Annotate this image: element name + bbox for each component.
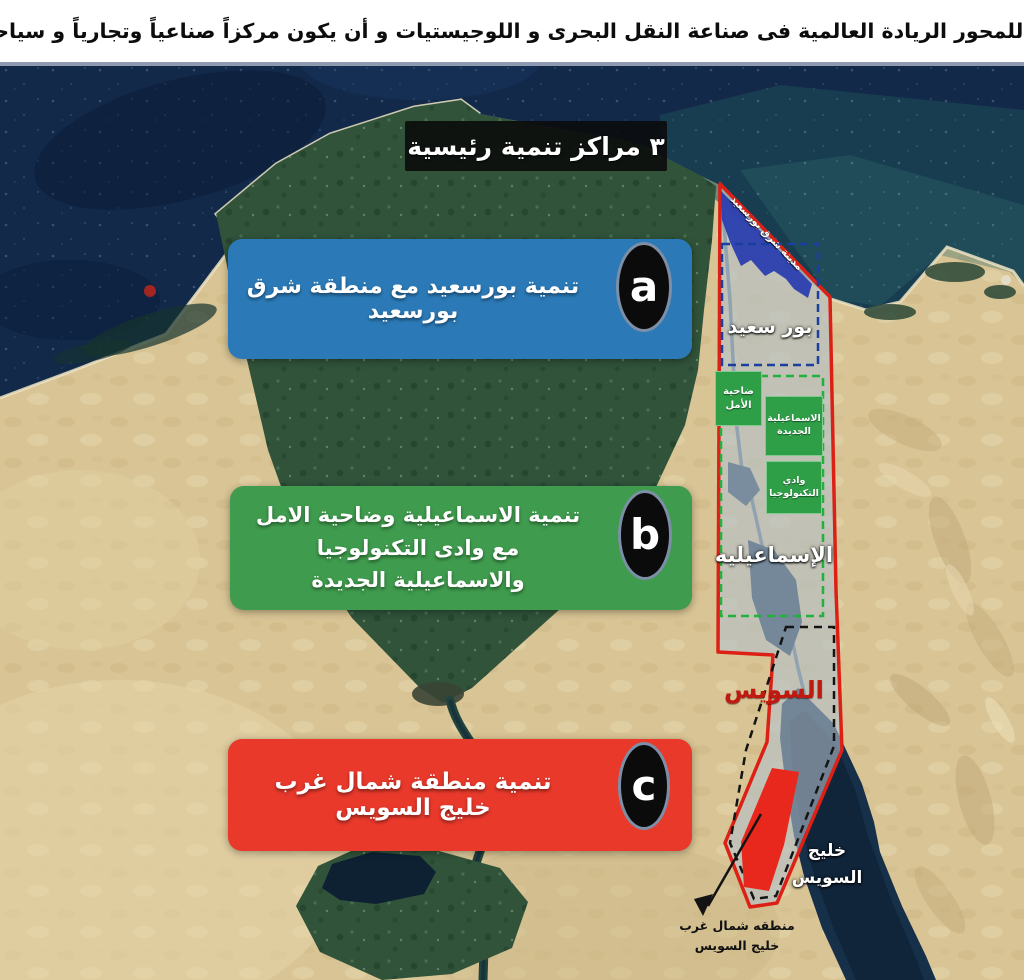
zone-a-letter: a xyxy=(630,266,658,308)
zone-banner-ismailia[interactable]: تنمية الاسماعيلية وضاحية الامل مع وادى ا… xyxy=(230,486,692,610)
nw-gulf-zone-note: منطقه شمال غرب خليج السويس xyxy=(676,916,798,956)
zone-banner-nw-gulf[interactable]: تنمية منطقة شمال غرب خليج السويس c xyxy=(228,739,692,851)
port-said-label: بور سعيد xyxy=(718,316,822,338)
zone-b-letter: b xyxy=(630,514,660,556)
gulf-of-suez-label: خليج السويس xyxy=(790,838,864,892)
suez-label: السويس xyxy=(722,676,826,704)
suez-canal-development-map: أن يكون للمحور الريادة العالمية فى صناعة… xyxy=(0,0,1024,980)
zone-c-badge: c xyxy=(618,742,670,830)
coastal-city-dot xyxy=(144,285,156,297)
main-banner: ٣ مراكز تنمية رئيسية xyxy=(405,121,667,171)
zone-a-badge: a xyxy=(616,242,672,332)
technology-valley-box: وادي التكنولوجيا xyxy=(766,461,822,514)
header-bar: أن يكون للمحور الريادة العالمية فى صناعة… xyxy=(0,0,1024,66)
zone-b-badge: b xyxy=(618,490,672,580)
new-ismailia-box: الاسماعيلية الجديدة xyxy=(765,396,823,456)
amal-suburb-box: ضاحية الأمل xyxy=(715,371,762,426)
zone-c-letter: c xyxy=(632,765,657,807)
page-title: أن يكون للمحور الريادة العالمية فى صناعة… xyxy=(0,19,1024,43)
zone-banner-port-said[interactable]: تنمية بورسعيد مع منطقة شرق بورسعيد a xyxy=(228,239,692,359)
ismailia-label: الإسماعيليه xyxy=(712,543,836,567)
